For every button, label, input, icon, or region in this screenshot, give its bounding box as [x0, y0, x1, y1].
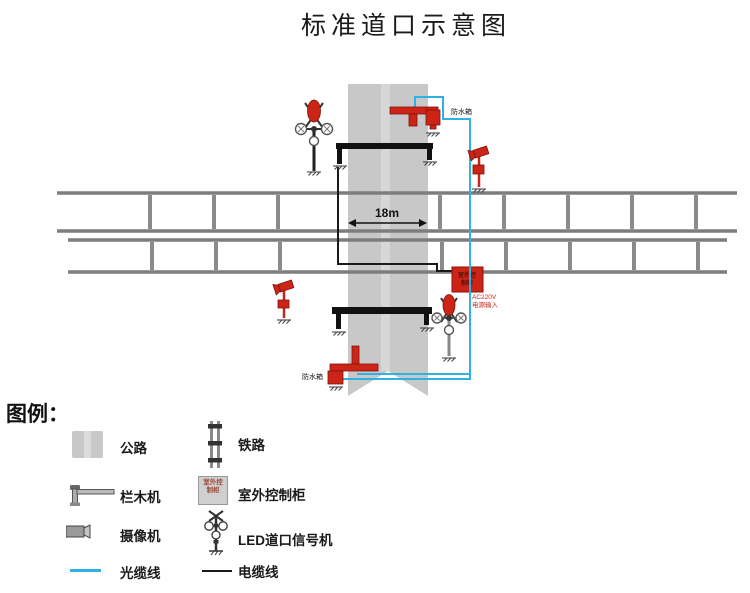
barrier-machine-icon	[70, 483, 116, 509]
legend-label-railway: 铁路	[238, 434, 265, 454]
crossing-diagram: 18m 室外控 制柜 AC220V 电源输入	[0, 0, 750, 400]
legend-label-barrier: 栏木机	[120, 486, 161, 506]
legend-label-electric-cable: 电缆线	[238, 561, 279, 581]
waterproof-box-label-bottom: 防水箱	[302, 372, 323, 381]
waterproof-box	[426, 110, 440, 125]
road-icon	[72, 431, 103, 458]
legend-label-camera: 摄像机	[120, 525, 161, 545]
led-signal-icon	[202, 510, 230, 557]
led-signal-bottom-right	[432, 295, 466, 362]
camera-icon	[66, 524, 92, 540]
signal-lamp	[443, 295, 455, 316]
led-signal-top-left	[296, 100, 333, 176]
power-input-label-line1: AC220V	[472, 294, 497, 301]
legend-label-led-signal: LED道口信号机	[238, 529, 333, 549]
distance-label: 18m	[375, 206, 399, 220]
outdoor-cabinet-icon: 室外控 制柜	[198, 476, 228, 505]
barrier-arm	[332, 307, 432, 314]
camera-bottom-left	[273, 279, 294, 324]
barrier-arm	[330, 364, 378, 371]
waterproof-box	[328, 371, 343, 384]
ground-symbol	[329, 387, 343, 391]
camera-top-right	[468, 145, 489, 193]
cabinet-text-line1: 室外控	[458, 271, 476, 279]
railway-icon	[205, 420, 225, 469]
power-input-label-line2: 电源输入	[472, 300, 499, 309]
cabinet-text-line2: 制柜	[461, 279, 473, 287]
electric-cable-icon	[202, 570, 232, 572]
barrier-arm	[336, 143, 433, 149]
waterproof-box-label-top: 防水箱	[451, 107, 472, 116]
legend-label-optical-cable: 光缆线	[120, 562, 161, 582]
legend-title: 图例：	[6, 398, 69, 428]
signal-lamp	[308, 100, 321, 122]
legend-label-road: 公路	[120, 437, 147, 457]
cabinet-icon-text-line1: 室外控	[199, 479, 227, 487]
ground-symbol	[426, 133, 440, 137]
cabinet-icon-text-line2: 制柜	[199, 487, 227, 495]
standard-crossing-schematic: 标准道口示意图	[0, 0, 750, 593]
road-center-stripe	[381, 84, 390, 371]
optical-cable-icon	[70, 569, 101, 572]
legend-label-cabinet: 室外控制柜	[238, 484, 306, 504]
